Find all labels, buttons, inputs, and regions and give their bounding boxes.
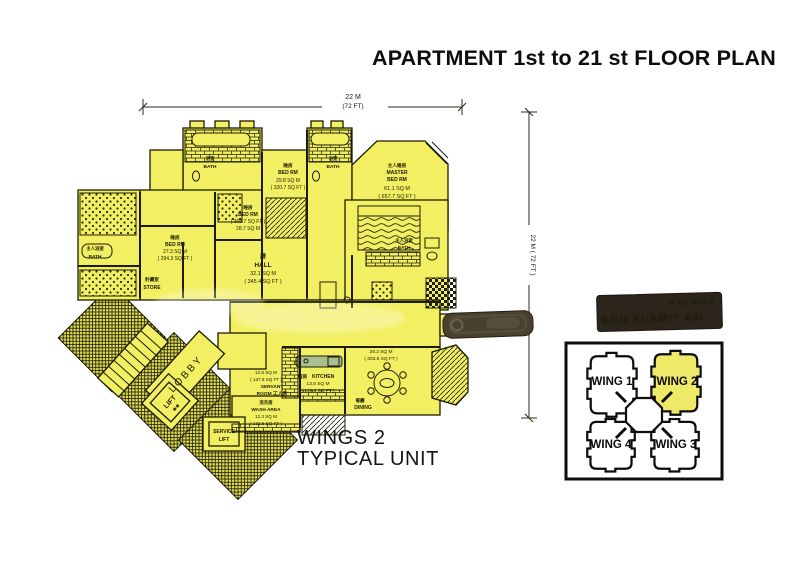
stamp-strip-small — [443, 310, 534, 338]
svg-text:廳: 廳 — [260, 252, 266, 260]
svg-text:睡房: 睡房 — [243, 204, 253, 211]
floor-plan-drawing: 主人睡房 MASTER BED RM 61.1 SQ M ( 657.7 SQ … — [0, 0, 800, 562]
svg-text:13.8 SQ M: 13.8 SQ M — [307, 381, 330, 387]
dim-width-ft: (72 FT) — [342, 103, 363, 110]
svg-text:28.7 SQ M: 28.7 SQ M — [236, 226, 260, 232]
svg-text:睡房: 睡房 — [170, 234, 180, 241]
svg-text:12.3 SQ M: 12.3 SQ M — [255, 414, 277, 419]
key-plan-label-wing2: WING 2 — [657, 376, 698, 388]
svg-text:SERVANT: SERVANT — [261, 384, 284, 390]
svg-text:( 132.6 SQ FT ): ( 132.6 SQ FT ) — [250, 421, 282, 426]
svg-text:( 148.5 SQ FT ): ( 148.5 SQ FT ) — [301, 388, 335, 394]
svg-text:12.8 SQ M: 12.8 SQ M — [255, 370, 277, 375]
stamp-strip-large: 8 IG OIRA BMG FORMIT 8di — [597, 292, 723, 331]
svg-text:28.2 SQ M: 28.2 SQ M — [370, 349, 393, 355]
svg-text:( 294.3 SQ FT ): ( 294.3 SQ FT ) — [158, 256, 193, 262]
svg-text:主人浴室: 主人浴室 — [395, 237, 413, 244]
svg-text:廚房: 廚房 — [298, 373, 308, 380]
svg-text:BED RM: BED RM — [165, 242, 185, 248]
key-plan: WING 1 WING 2 WING 4 WING 3 — [566, 343, 722, 479]
svg-text:KITCHEN: KITCHEN — [312, 374, 335, 380]
key-plan-core — [626, 398, 662, 432]
key-plan-label-wing1: WING 1 — [592, 376, 633, 388]
svg-text:LIFT: LIFT — [219, 437, 230, 443]
key-plan-label-wing4: WING 4 — [591, 439, 632, 451]
svg-text:( 303.8 SQ FT ): ( 303.8 SQ FT ) — [364, 356, 398, 362]
dim-height: 22 M ( 72 FT ) — [529, 234, 536, 275]
svg-text:餐廳: 餐廳 — [356, 397, 365, 404]
svg-text:( 657.7 SQ FT ): ( 657.7 SQ FT ) — [378, 194, 416, 200]
svg-text:29.8 SQ M: 29.8 SQ M — [276, 178, 300, 184]
svg-text:DINING: DINING — [354, 405, 372, 411]
caption: WINGS 2 TYPICAL UNIT — [297, 427, 439, 470]
svg-text:HALL: HALL — [254, 262, 271, 269]
svg-text:睡房: 睡房 — [283, 162, 293, 169]
svg-text:SERVICE: SERVICE — [213, 429, 236, 435]
svg-text:貯藏室: 貯藏室 — [145, 276, 159, 283]
svg-text:STORE: STORE — [143, 285, 161, 291]
svg-text:32.1 SQ M: 32.1 SQ M — [250, 271, 276, 277]
svg-text:( 320.7 SQ FT ): ( 320.7 SQ FT ) — [271, 185, 306, 191]
svg-text:WASH AREA: WASH AREA — [251, 407, 281, 413]
svg-text:BED RM: BED RM — [278, 170, 298, 176]
svg-text:主人睡房: 主人睡房 — [388, 162, 407, 169]
svg-text:洗衣房: 洗衣房 — [259, 399, 273, 406]
svg-text:MASTER: MASTER — [386, 170, 408, 176]
svg-text:( 308.7 SQ FT ): ( 308.7 SQ FT ) — [231, 219, 266, 225]
svg-text:BATH: BATH — [89, 254, 103, 260]
svg-text:BATH: BATH — [204, 164, 218, 170]
svg-text:BATH: BATH — [398, 245, 411, 250]
svg-text:27.3 SQ M: 27.3 SQ M — [163, 249, 187, 255]
svg-text:( 137.9 SQ FT ): ( 137.9 SQ FT ) — [250, 377, 282, 382]
svg-text:主人浴室: 主人浴室 — [86, 245, 104, 252]
svg-text:( 345.4 SQ FT ): ( 345.4 SQ FT ) — [244, 279, 282, 285]
svg-text:BED RM: BED RM — [387, 177, 407, 183]
svg-text:61.1 SQ M: 61.1 SQ M — [384, 186, 410, 192]
caption-line2: TYPICAL UNIT — [297, 448, 439, 470]
stamp-embossed-line1: 8 IG OIRA — [670, 300, 716, 308]
caption-line1: WINGS 2 — [297, 427, 386, 449]
svg-text:ROOM 工人房: ROOM 工人房 — [257, 390, 288, 397]
svg-text:BED RM: BED RM — [238, 212, 258, 218]
svg-text:BATH: BATH — [327, 164, 341, 170]
key-plan-label-wing3: WING 3 — [656, 439, 697, 451]
svg-text:浴室: 浴室 — [329, 155, 338, 162]
svg-text:浴室: 浴室 — [206, 155, 215, 162]
dim-width-m: 22 M — [345, 94, 361, 101]
floor-plan-page: APARTMENT 1st to 21 st FLOOR PLAN — [0, 0, 800, 562]
